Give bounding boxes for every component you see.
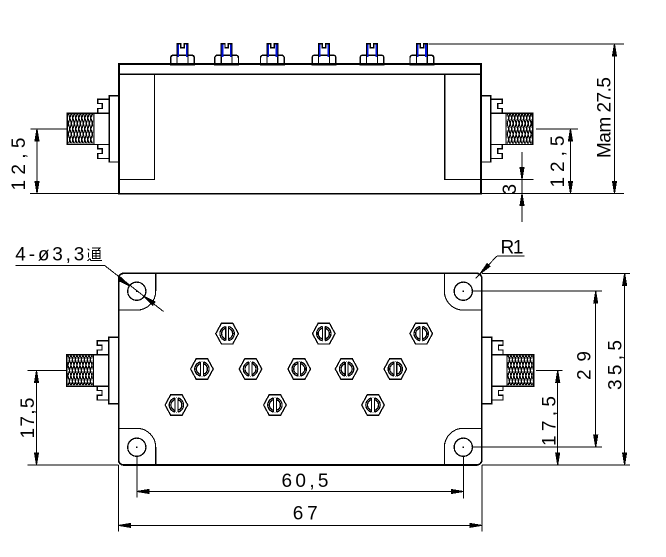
svg-text:35,5: 35,5 [606,340,627,390]
svg-text:17,5: 17,5 [18,398,39,439]
svg-text:R1: R1 [501,238,524,259]
svg-text:12,5: 12,5 [548,136,569,188]
svg-text:Mam 27.5: Mam 27.5 [595,77,616,158]
svg-text:17,5: 17,5 [540,396,561,446]
svg-text:60,5: 60,5 [282,471,329,492]
svg-text:3: 3 [500,184,521,195]
